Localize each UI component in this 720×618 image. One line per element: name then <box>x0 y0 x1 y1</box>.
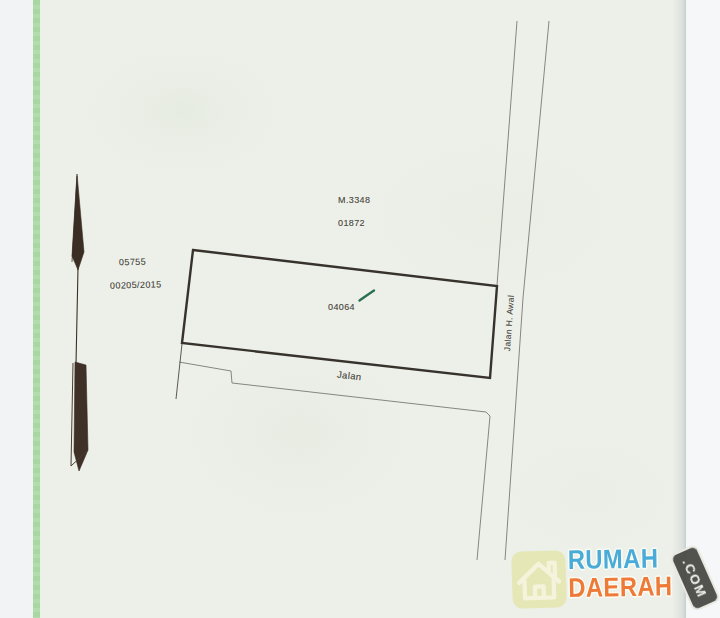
road-right-west-edge <box>497 21 517 285</box>
road-right-east-edge <box>505 21 549 560</box>
survey-drawing <box>0 0 720 618</box>
rumahdaerah-watermark: RUMAH DAERAH .COM <box>508 545 720 613</box>
house-badge <box>511 550 567 609</box>
check-mark-icon <box>360 291 375 301</box>
brand-line2: DAERAH <box>568 573 673 602</box>
scanned-survey-page: { "document": { "labels": { "block_ref":… <box>0 0 720 618</box>
brand-line1: RUMAH <box>568 545 673 574</box>
parcel-outline <box>182 250 497 378</box>
house-icon <box>511 550 567 609</box>
boundary-extension-line <box>176 344 182 399</box>
north-arrow-icon <box>71 174 88 471</box>
road-bottom-south-edge <box>179 362 490 560</box>
brand-text: RUMAH DAERAH <box>568 545 687 602</box>
